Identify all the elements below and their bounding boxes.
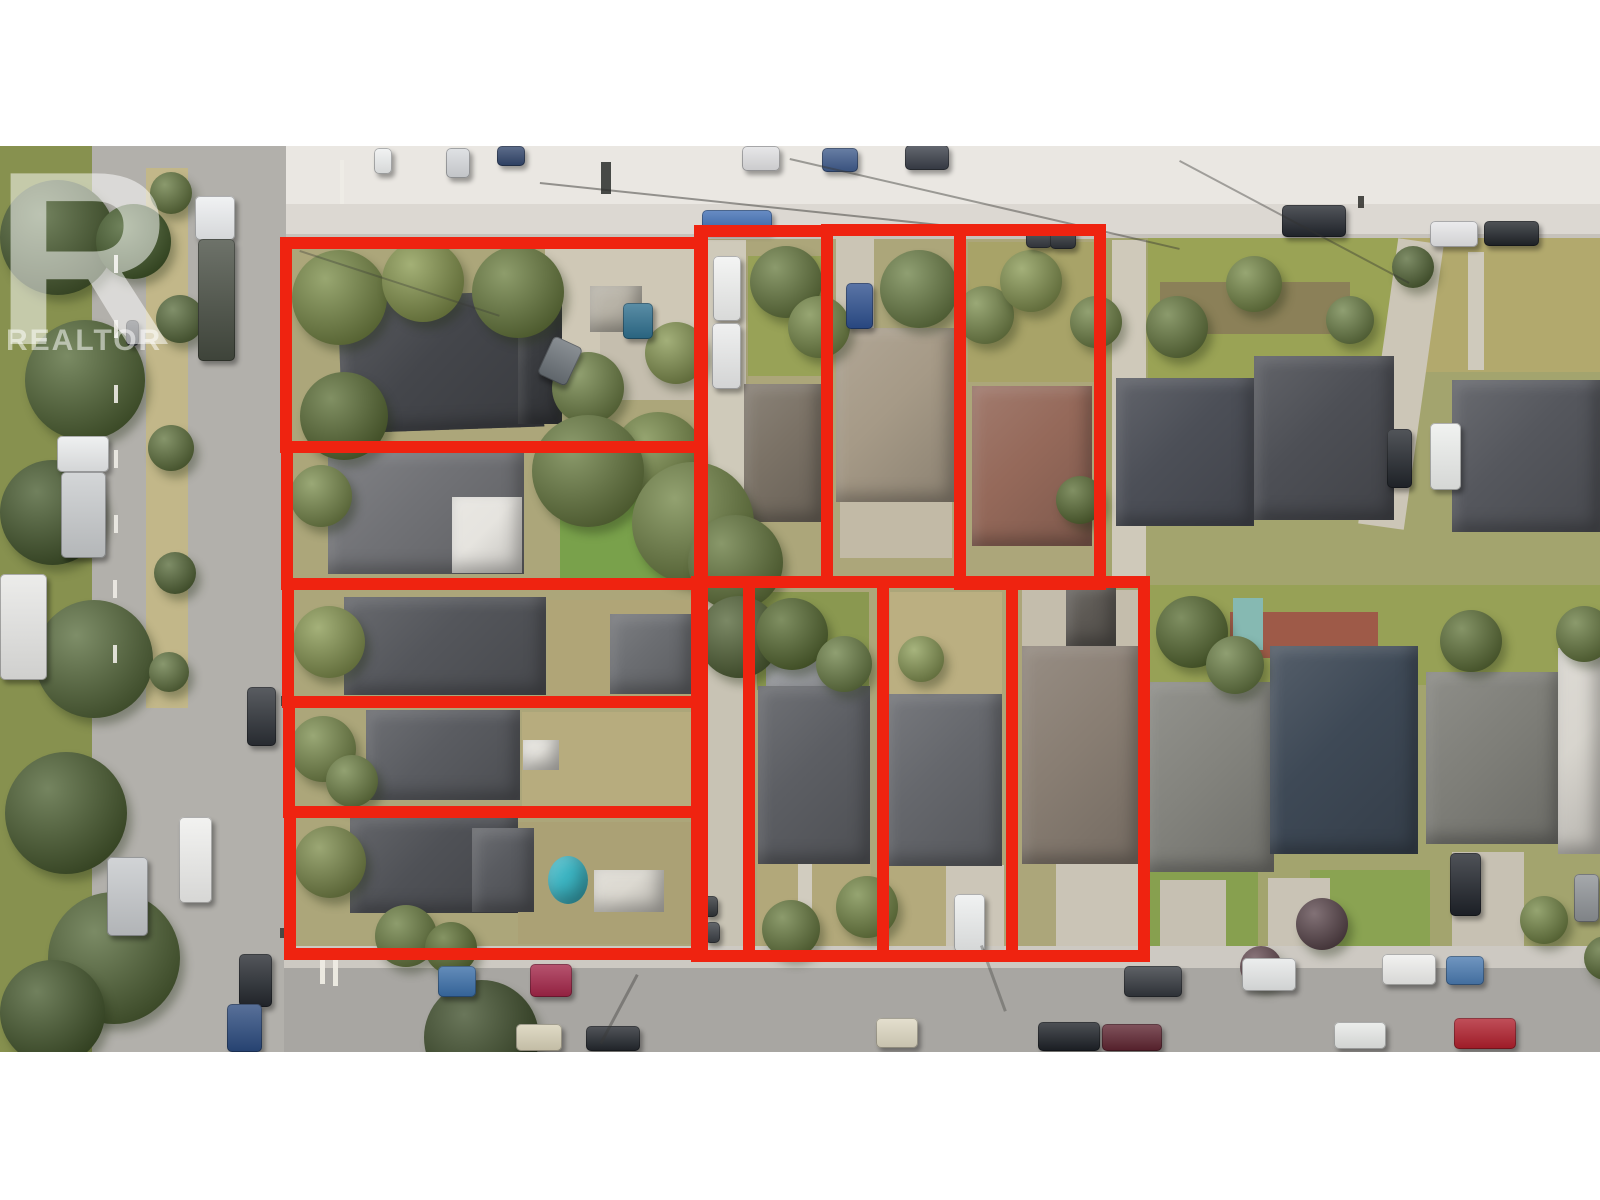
parcel-outline-7 — [821, 224, 966, 588]
listing-screenshot: R REALTOR — [0, 0, 1600, 1200]
parking-mark — [320, 958, 325, 984]
parking-mark — [333, 960, 338, 986]
semi-truck-cab — [195, 196, 235, 240]
parked-car — [586, 1026, 640, 1051]
tree — [1226, 256, 1282, 312]
parked-car — [1382, 954, 1436, 985]
utility-pole — [601, 162, 611, 194]
tree — [1520, 896, 1568, 944]
lower-right-drive1 — [1160, 880, 1226, 952]
parked-car — [530, 964, 572, 997]
parked-car — [179, 817, 212, 903]
aerial-photo: R REALTOR — [0, 146, 1600, 1052]
parked-car — [1124, 966, 1182, 997]
cyclist — [126, 320, 139, 346]
parcel-outline-10 — [743, 576, 889, 962]
parked-car — [227, 1004, 262, 1052]
parked-car — [374, 148, 392, 174]
semi-truck-trailer — [198, 239, 235, 361]
lane-dash — [114, 450, 118, 468]
parked-car — [876, 1018, 918, 1048]
tree — [5, 752, 127, 874]
parcel-outline-6 — [694, 225, 833, 588]
parked-car — [438, 966, 476, 997]
parked-rv — [0, 574, 47, 680]
cement-truck-cab — [57, 436, 109, 472]
right-top-house1-roof — [1116, 378, 1254, 526]
parked-car — [446, 148, 470, 178]
lane-dash — [114, 385, 118, 403]
tree — [1440, 610, 1502, 672]
parcel-outline-8 — [954, 224, 1106, 590]
tree — [154, 552, 196, 594]
parked-van — [905, 146, 949, 170]
parked-car — [107, 857, 148, 936]
right-low-house4-roof — [1558, 648, 1600, 854]
tree — [96, 204, 171, 279]
tree — [148, 425, 194, 471]
parked-car — [1102, 1024, 1162, 1051]
parked-car — [1484, 221, 1539, 246]
tree — [1326, 296, 1374, 344]
parked-car — [239, 954, 272, 1007]
lane-dash — [114, 320, 118, 338]
parked-car — [1334, 1022, 1386, 1049]
tree — [1392, 246, 1434, 288]
right-low-house3-roof — [1426, 672, 1560, 844]
right-path — [1468, 252, 1484, 370]
tree — [150, 172, 192, 214]
tree — [156, 295, 204, 343]
parcel-outline-4 — [283, 696, 708, 818]
parked-car — [1574, 874, 1599, 922]
parked-rv — [1430, 423, 1461, 490]
lane-dash — [114, 515, 118, 533]
parcel-outline-1 — [280, 237, 708, 453]
tree — [1146, 296, 1208, 358]
shrub-burgundy — [1296, 898, 1348, 950]
parcel-outline-5 — [284, 806, 708, 960]
parked-van — [742, 146, 780, 171]
tree — [149, 652, 189, 692]
parcel-outline-12 — [1006, 576, 1150, 962]
parked-van — [1430, 221, 1478, 247]
parked-car — [516, 1024, 562, 1051]
parked-car — [1387, 429, 1412, 488]
parked-car — [247, 687, 276, 746]
tree — [35, 600, 153, 718]
tree — [1206, 636, 1264, 694]
lane-dash — [113, 580, 117, 598]
cement-truck-drum — [61, 472, 106, 558]
right-low-house1-roof — [1146, 682, 1274, 872]
parcel-outline-2 — [281, 441, 708, 590]
parked-car — [497, 146, 525, 166]
parcel-outline-11 — [877, 576, 1018, 962]
parked-car — [1242, 958, 1296, 991]
parked-car — [1454, 1018, 1516, 1049]
right-top-house2-roof — [1254, 356, 1394, 520]
parked-car — [1038, 1022, 1100, 1051]
parked-suv — [1450, 853, 1481, 916]
right-top-house3-roof — [1452, 380, 1600, 532]
lane-dash — [340, 160, 344, 204]
parked-car — [1446, 956, 1484, 985]
utility-pole — [1358, 196, 1364, 208]
lane-dash — [113, 645, 117, 663]
lane-dash — [114, 255, 118, 273]
parcel-outline-3 — [282, 578, 708, 708]
right-low-house2-roof — [1270, 646, 1418, 854]
